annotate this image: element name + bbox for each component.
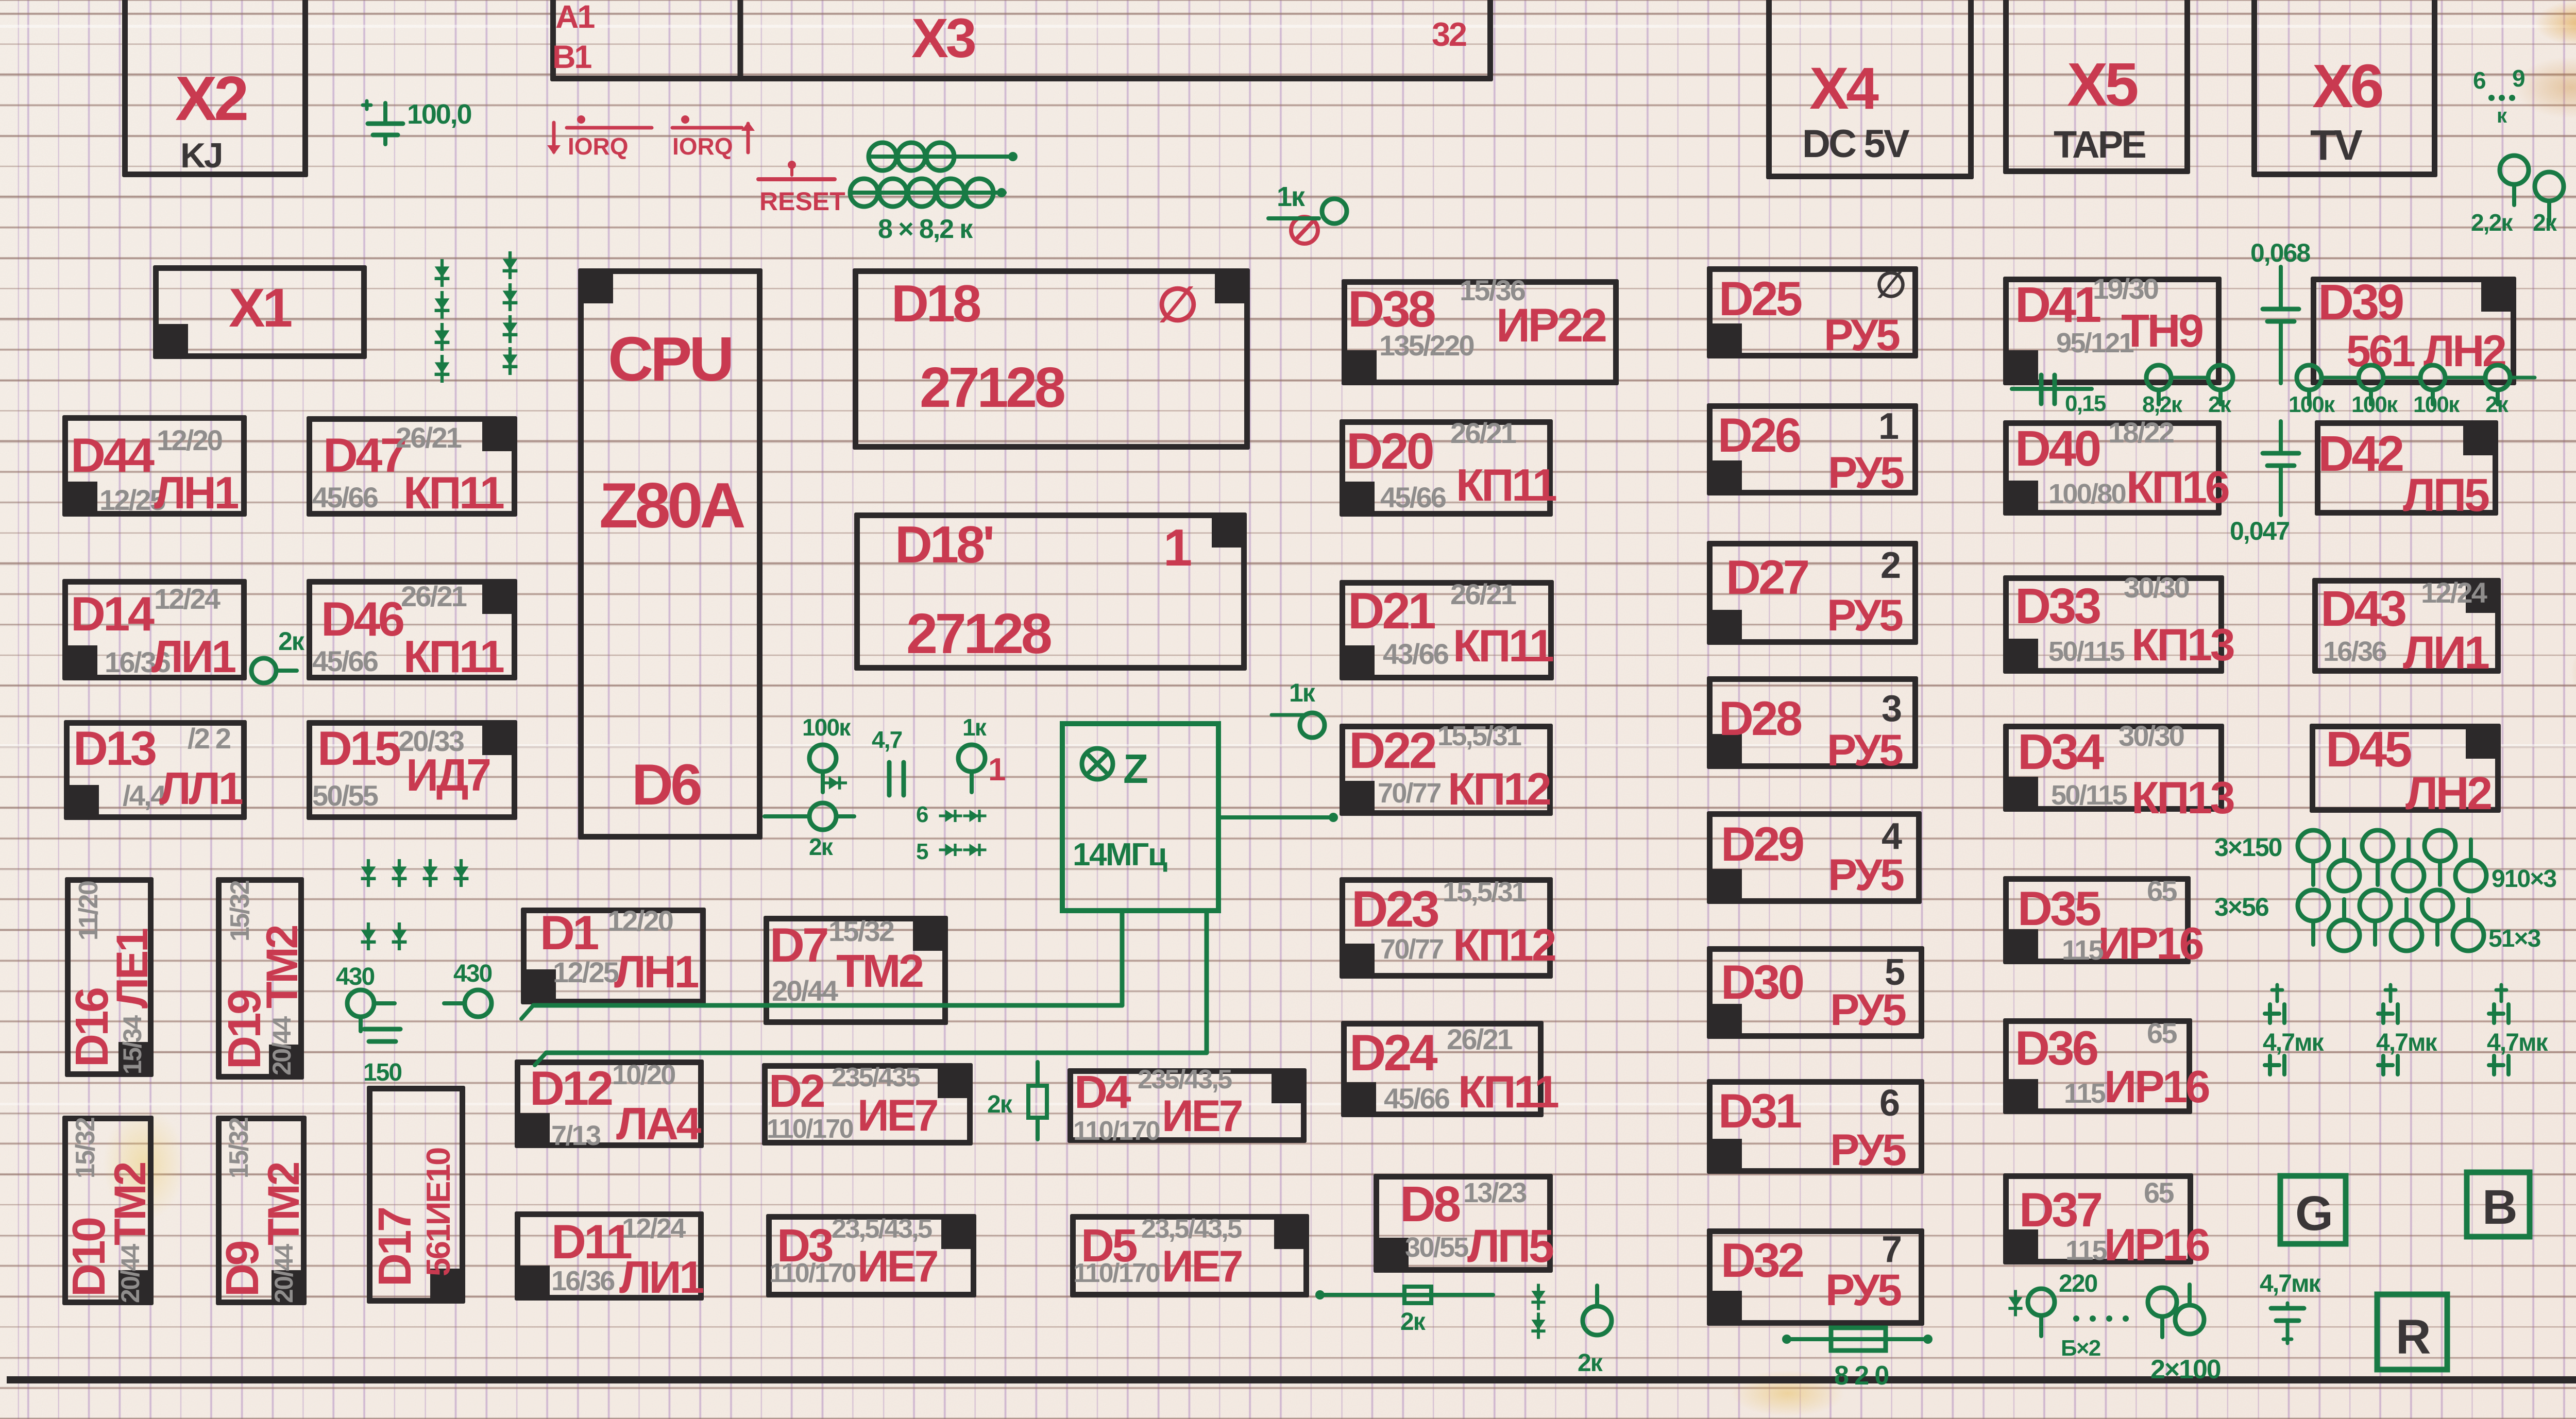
svg-text:100к: 100к bbox=[2351, 392, 2398, 417]
svg-text:3×150: 3×150 bbox=[2214, 833, 2282, 862]
svg-text:B: B bbox=[2482, 1180, 2516, 1235]
svg-text:100к: 100к bbox=[2289, 392, 2335, 417]
svg-text:0,15: 0,15 bbox=[2065, 391, 2106, 416]
svg-text:910×3: 910×3 bbox=[2492, 865, 2556, 893]
svg-text:2к: 2к bbox=[809, 833, 834, 860]
svg-text:9: 9 bbox=[2512, 65, 2524, 92]
svg-text:2к: 2к bbox=[1578, 1349, 1603, 1377]
svg-text:100к: 100к bbox=[802, 714, 851, 741]
svg-text:1к: 1к bbox=[1289, 678, 1316, 707]
svg-text:2к: 2к bbox=[987, 1091, 1013, 1118]
svg-text:IORQ: IORQ bbox=[568, 133, 629, 160]
svg-text:8,2к: 8,2к bbox=[2142, 392, 2183, 417]
svg-text:4,7мк: 4,7мк bbox=[2260, 1270, 2321, 1297]
svg-text:2к: 2к bbox=[2533, 209, 2557, 236]
svg-text:5: 5 bbox=[916, 839, 928, 864]
svg-text:51×3: 51×3 bbox=[2488, 925, 2540, 952]
svg-text:430: 430 bbox=[336, 963, 375, 990]
svg-text:1к: 1к bbox=[962, 714, 987, 741]
svg-text:8 × 8,2 к: 8 × 8,2 к bbox=[878, 214, 973, 244]
svg-text:2к: 2к bbox=[278, 627, 305, 656]
svg-text:8 2 0: 8 2 0 bbox=[1834, 1361, 1888, 1391]
svg-text:IORQ: IORQ bbox=[672, 133, 733, 160]
svg-text:G: G bbox=[2295, 1186, 2331, 1241]
svg-text:100,0: 100,0 bbox=[407, 99, 471, 130]
svg-text:2к: 2к bbox=[1400, 1308, 1426, 1336]
svg-text:1к: 1к bbox=[1277, 181, 1306, 212]
svg-text:3×56: 3×56 bbox=[2214, 893, 2268, 921]
svg-text:2×100: 2×100 bbox=[2150, 1355, 2221, 1384]
svg-text:430: 430 bbox=[453, 960, 492, 987]
svg-text:к: к bbox=[2497, 105, 2507, 127]
svg-text:Б×2: Б×2 bbox=[2061, 1336, 2100, 1361]
svg-text:14МГц: 14МГц bbox=[1073, 837, 1167, 873]
svg-text:4,7мк: 4,7мк bbox=[2487, 1029, 2549, 1056]
svg-text:4,7мк: 4,7мк bbox=[2263, 1029, 2325, 1056]
svg-text:0,068: 0,068 bbox=[2250, 238, 2310, 267]
svg-text:6: 6 bbox=[916, 802, 928, 827]
svg-text:0,047: 0,047 bbox=[2230, 517, 2289, 545]
svg-text:6: 6 bbox=[2473, 67, 2485, 94]
svg-text:R: R bbox=[2396, 1310, 2430, 1364]
svg-text:220: 220 bbox=[2059, 1270, 2097, 1297]
svg-text:2,2к: 2,2к bbox=[2471, 209, 2513, 236]
svg-text:4,7мк: 4,7мк bbox=[2376, 1029, 2438, 1056]
svg-text:2к: 2к bbox=[2208, 392, 2232, 417]
svg-text:Z: Z bbox=[1123, 746, 1147, 792]
svg-text:150: 150 bbox=[363, 1059, 402, 1086]
svg-text:2к: 2к bbox=[2485, 392, 2509, 417]
svg-text:4,7: 4,7 bbox=[872, 726, 902, 753]
svg-text:1: 1 bbox=[988, 752, 1005, 788]
svg-text:100к: 100к bbox=[2413, 392, 2460, 417]
svg-text:RESET: RESET bbox=[759, 187, 845, 216]
